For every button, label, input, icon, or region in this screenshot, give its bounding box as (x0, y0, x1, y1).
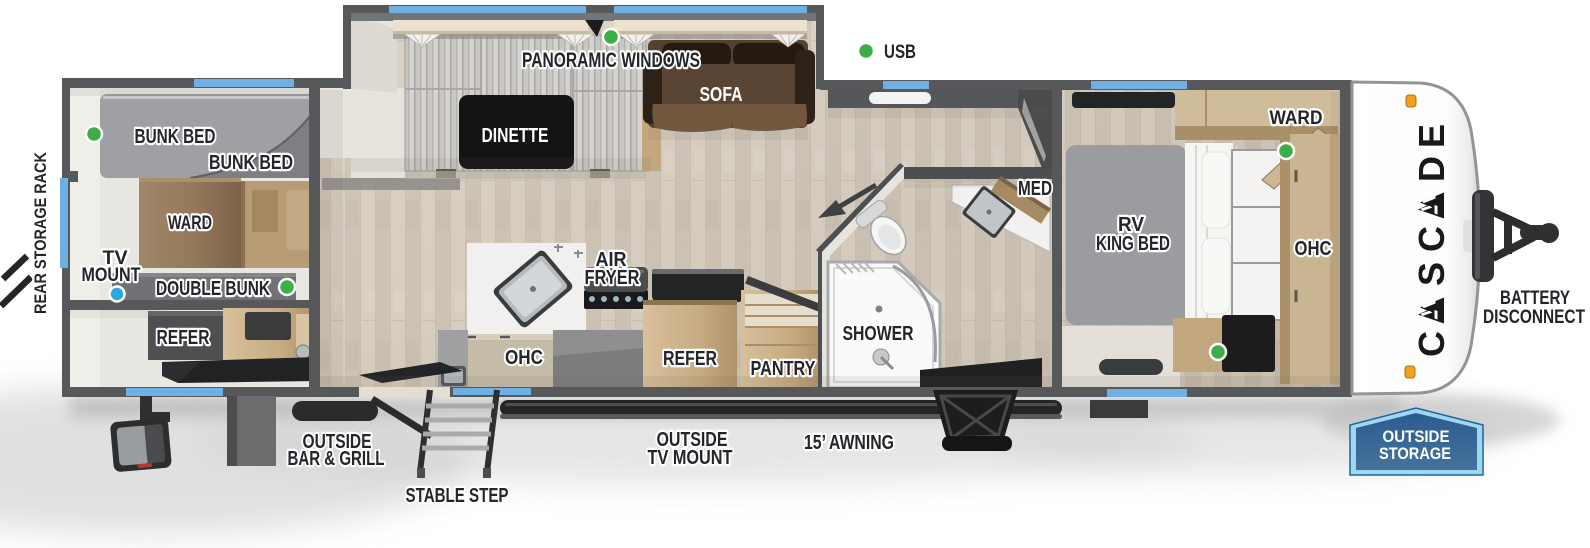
svg-text:C: C (1411, 331, 1452, 357)
svg-text:BUNK BED: BUNK BED (135, 126, 216, 148)
svg-text:REFER: REFER (157, 327, 210, 349)
svg-text:WARD: WARD (1270, 108, 1323, 129)
svg-text:BATTERY: BATTERY (1500, 288, 1570, 309)
svg-text:PANORAMIC WINDOWS: PANORAMIC WINDOWS (522, 49, 700, 72)
svg-text:E: E (1411, 124, 1452, 148)
svg-text:OHC: OHC (505, 347, 543, 369)
svg-text:WARD: WARD (168, 213, 212, 234)
svg-text:DOUBLE BUNK: DOUBLE BUNK (156, 278, 270, 300)
svg-text:REAR STORAGE RACK: REAR STORAGE RACK (31, 151, 50, 314)
svg-text:FRYER: FRYER (585, 267, 640, 289)
svg-text:OHC: OHC (1295, 238, 1332, 260)
svg-text:PANTRY: PANTRY (751, 358, 817, 380)
svg-text:REFER: REFER (663, 348, 717, 370)
svg-text:MOUNT: MOUNT (82, 265, 141, 286)
svg-text:STORAGE: STORAGE (1379, 444, 1451, 463)
svg-text:DISCONNECT: DISCONNECT (1483, 307, 1585, 328)
svg-text:MED: MED (1018, 178, 1052, 200)
svg-text:SHOWER: SHOWER (843, 323, 914, 345)
svg-text:C: C (1411, 226, 1452, 252)
svg-text:15’ AWNING: 15’ AWNING (804, 432, 894, 454)
svg-text:BUNK BED: BUNK BED (209, 152, 293, 174)
svg-text:DINETTE: DINETTE (482, 125, 549, 147)
svg-text:USB: USB (884, 42, 916, 63)
svg-text:D: D (1411, 156, 1452, 182)
svg-text:KING BED: KING BED (1096, 233, 1170, 255)
svg-text:S: S (1411, 262, 1452, 286)
svg-text:BAR & GRILL: BAR & GRILL (288, 448, 385, 470)
svg-text:TV MOUNT: TV MOUNT (648, 447, 733, 469)
svg-text:SOFA: SOFA (700, 84, 743, 106)
svg-text:STABLE STEP: STABLE STEP (406, 485, 509, 507)
